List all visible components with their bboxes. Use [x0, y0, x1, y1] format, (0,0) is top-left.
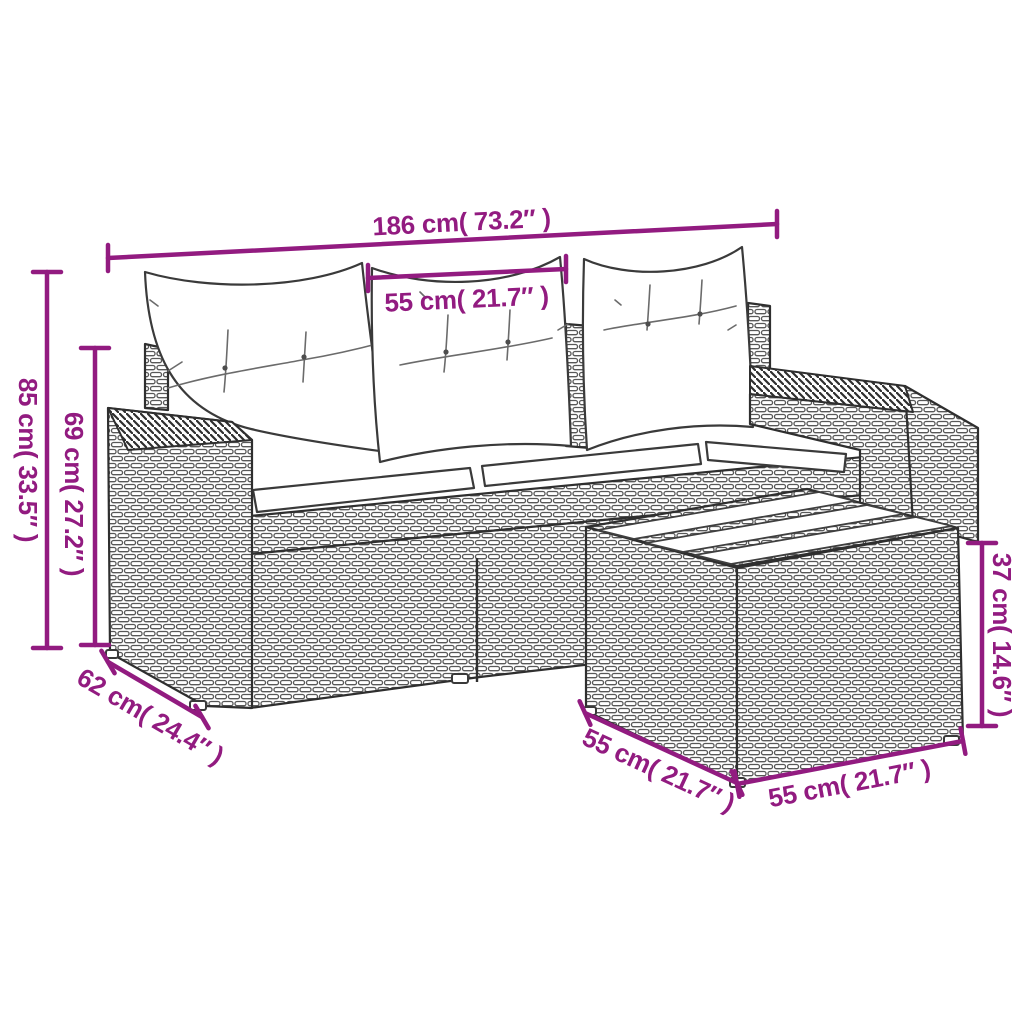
dim-arm-height: 69 cm( 27.2″ ): [59, 348, 109, 645]
dim-sofa-height-label: 85 cm( 33.5″ ): [13, 378, 43, 542]
left-armrest-front: [108, 408, 252, 708]
back-post-right: [748, 303, 770, 370]
dim-tick: [961, 728, 966, 754]
dim-sofa-width: 186 cm( 73.2″ ): [108, 203, 777, 271]
sofa-foot: [452, 674, 468, 683]
diagram-svg: 186 cm( 73.2″ ) 55 cm( 21.7″ ) 85 cm( 33…: [0, 0, 1024, 1024]
back-cushion-3: [583, 247, 753, 450]
dim-arm-height-label: 69 cm( 27.2″ ): [59, 412, 89, 576]
coffee-table-illustration: [584, 489, 963, 787]
left-armrest: [108, 408, 252, 708]
sofa-foot: [106, 650, 118, 658]
dim-table-height-label: 37 cm( 14.6″ ): [987, 553, 1017, 717]
table-front-face: [737, 528, 963, 783]
product-dimension-diagram: 186 cm( 73.2″ ) 55 cm( 21.7″ ) 85 cm( 33…: [0, 0, 1024, 1024]
dim-table-height: 37 cm( 14.6″ ): [968, 543, 1017, 726]
dim-seat-width: 55 cm( 21.7″ ): [368, 256, 566, 318]
dim-sofa-height: 85 cm( 33.5″ ): [13, 272, 61, 648]
